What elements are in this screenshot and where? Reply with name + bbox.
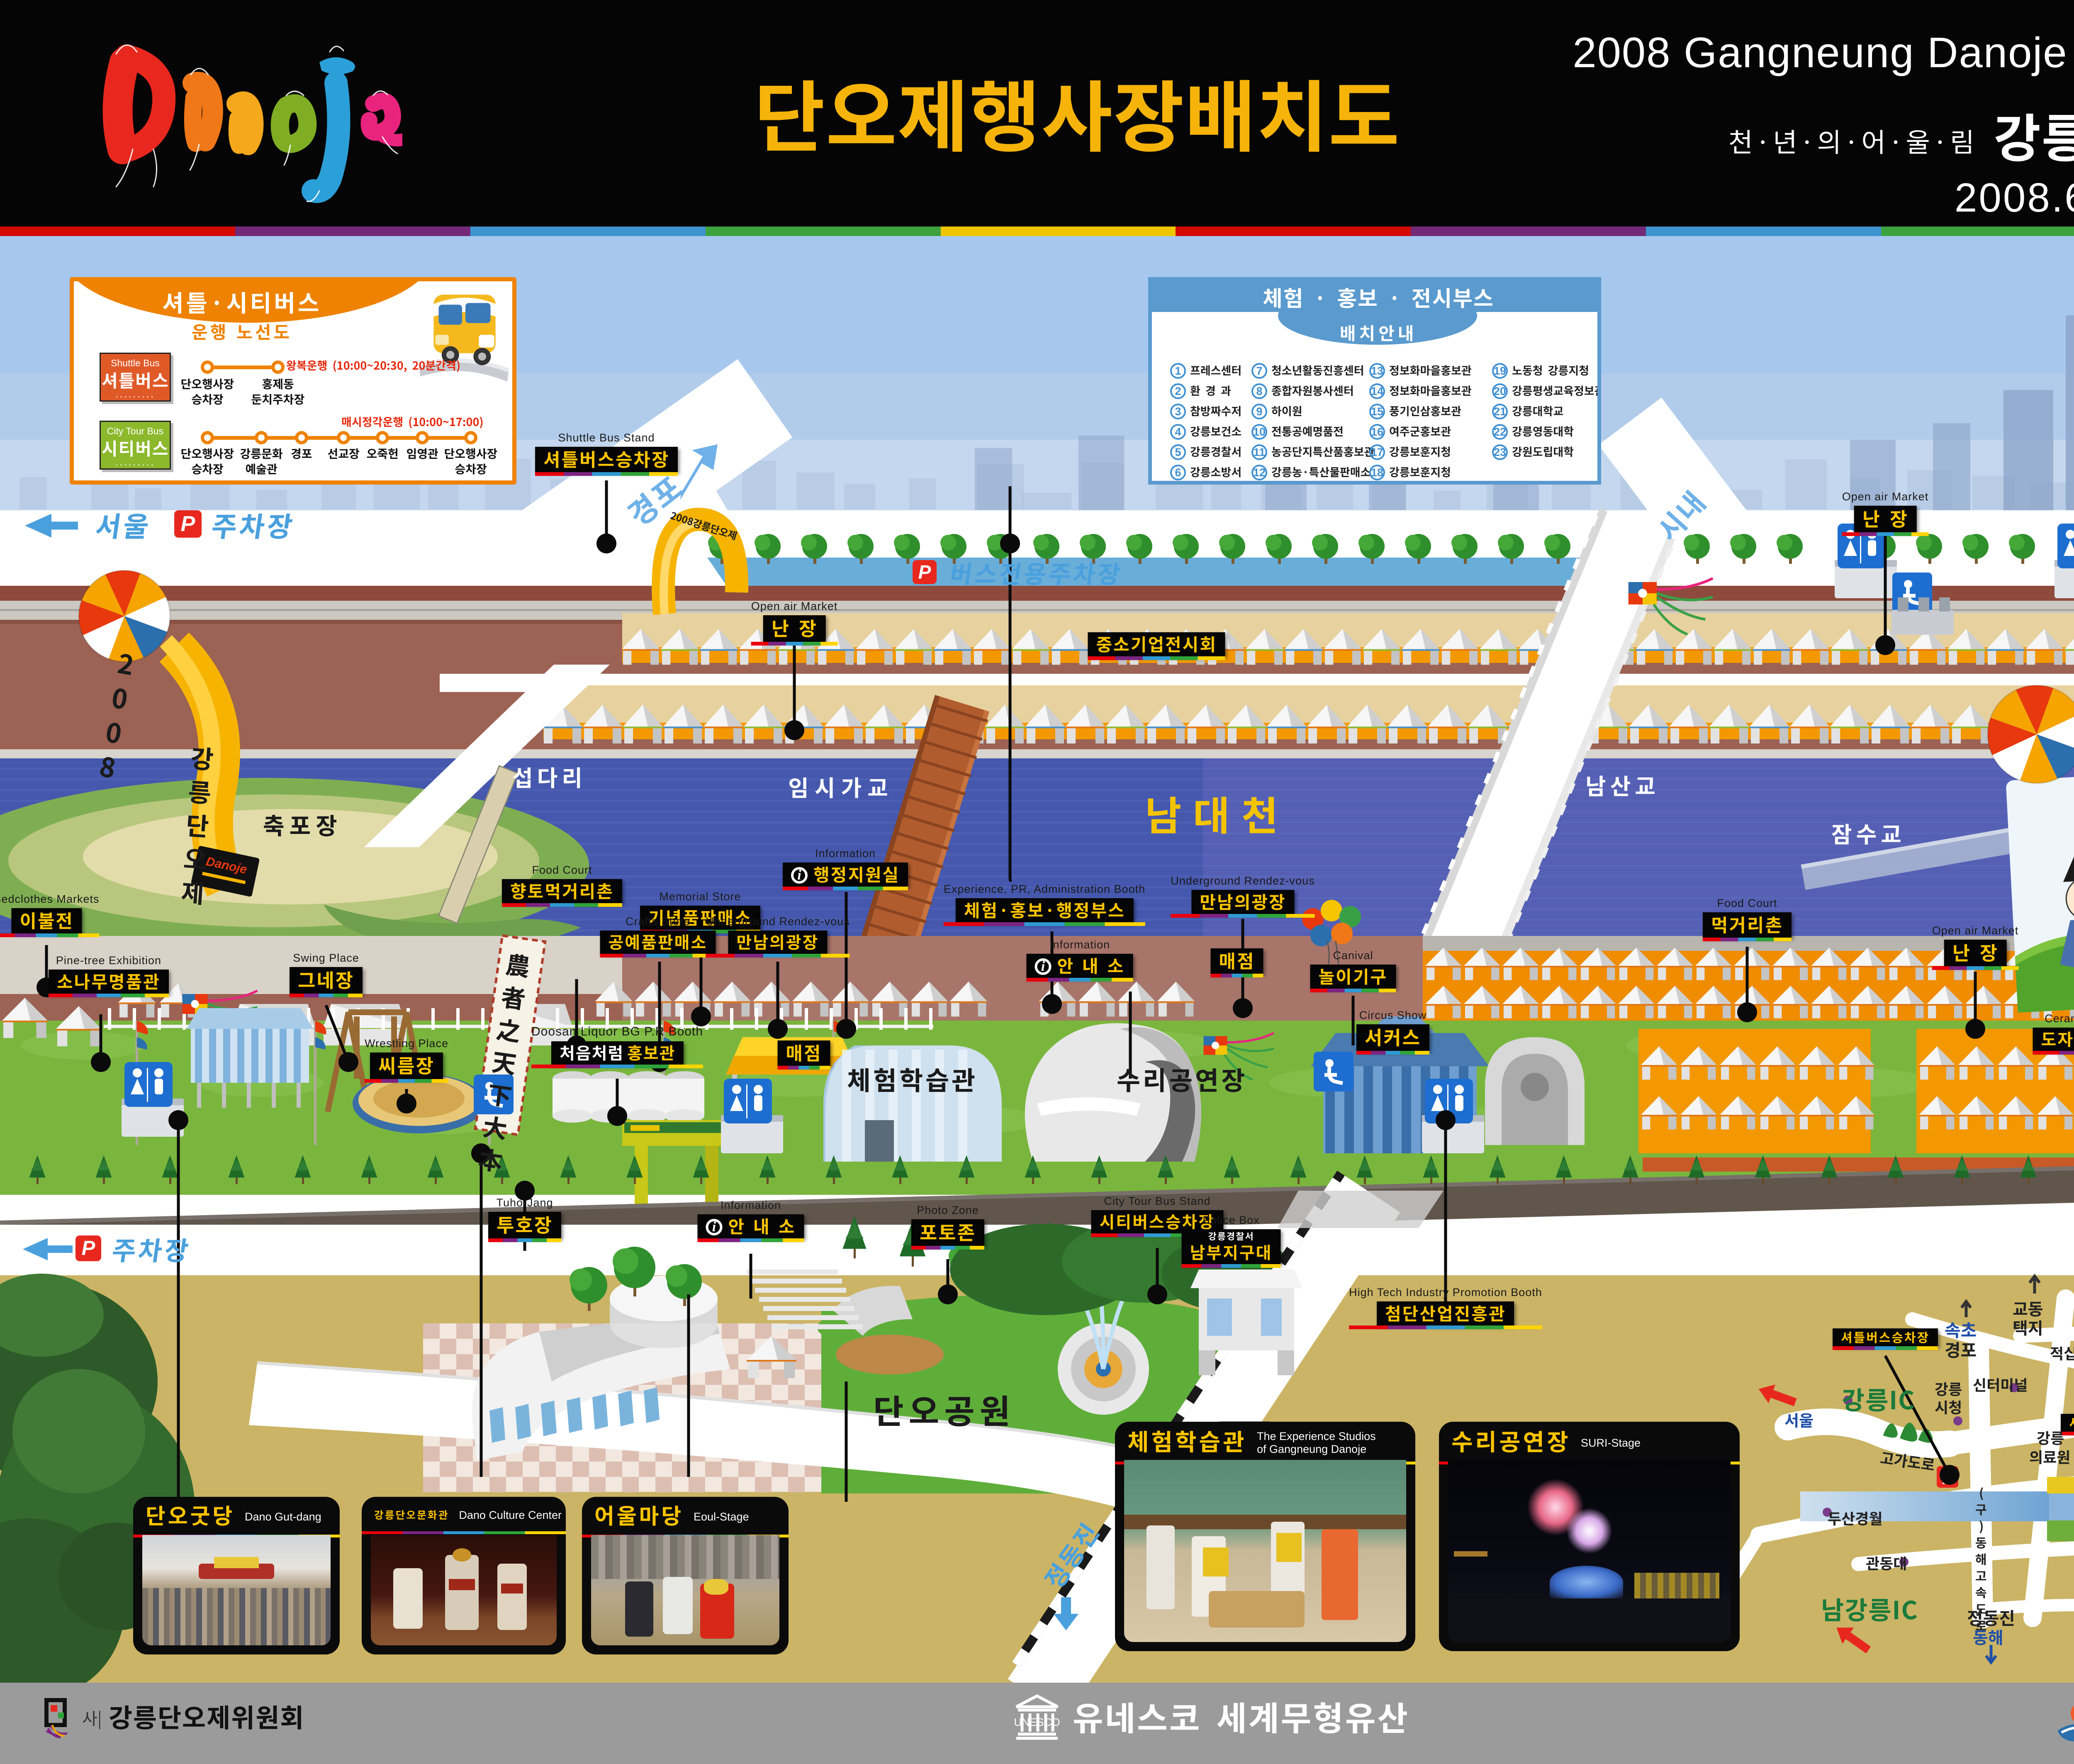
svg-text:UNESCO: UNESCO bbox=[1014, 1716, 1060, 1728]
